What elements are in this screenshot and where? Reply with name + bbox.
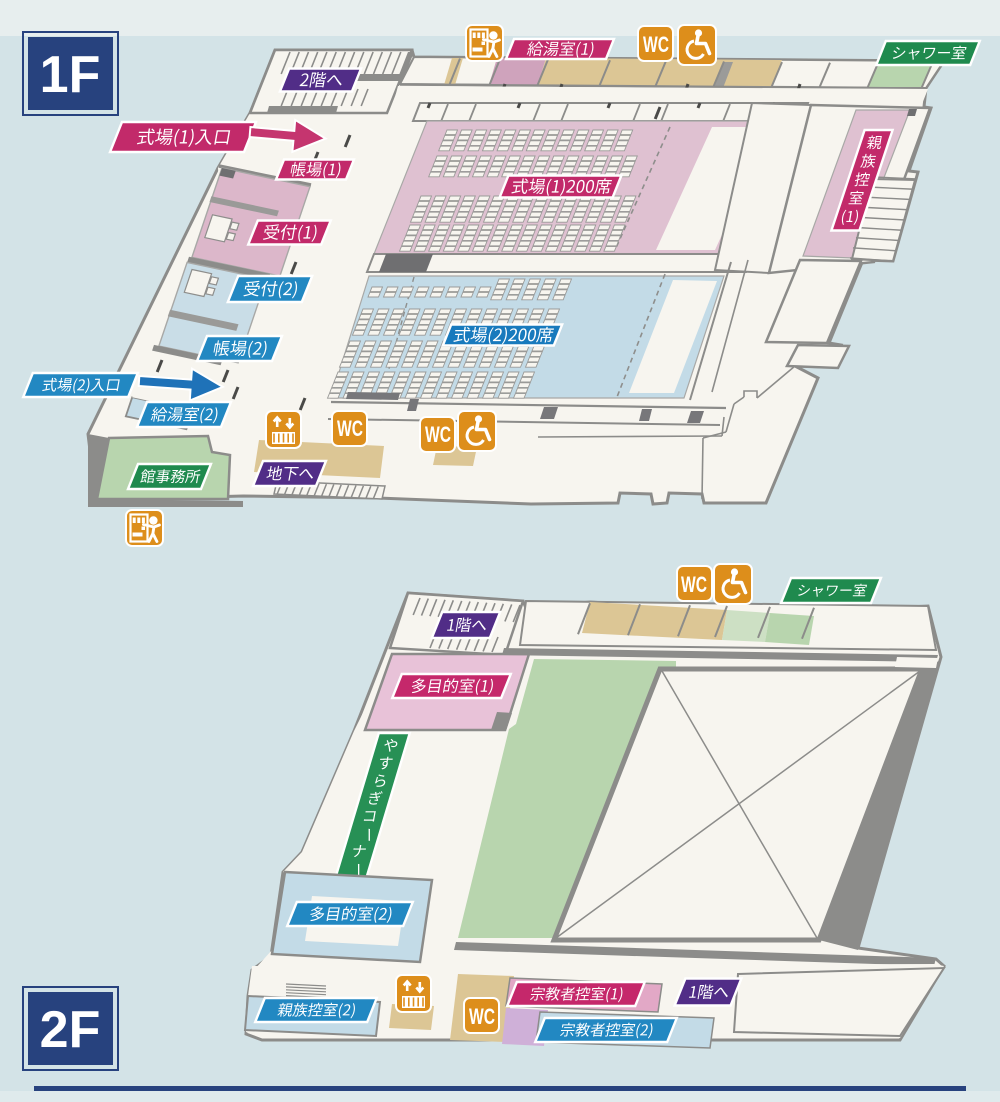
svg-text:2F: 2F: [40, 1001, 101, 1059]
svg-text:WC: WC: [337, 416, 363, 441]
svg-text:1F: 1F: [40, 46, 101, 104]
svg-text:WC: WC: [643, 32, 669, 57]
svg-text:WC: WC: [681, 572, 707, 597]
svg-text:WC: WC: [425, 422, 451, 447]
svg-text:WC: WC: [469, 1004, 495, 1029]
